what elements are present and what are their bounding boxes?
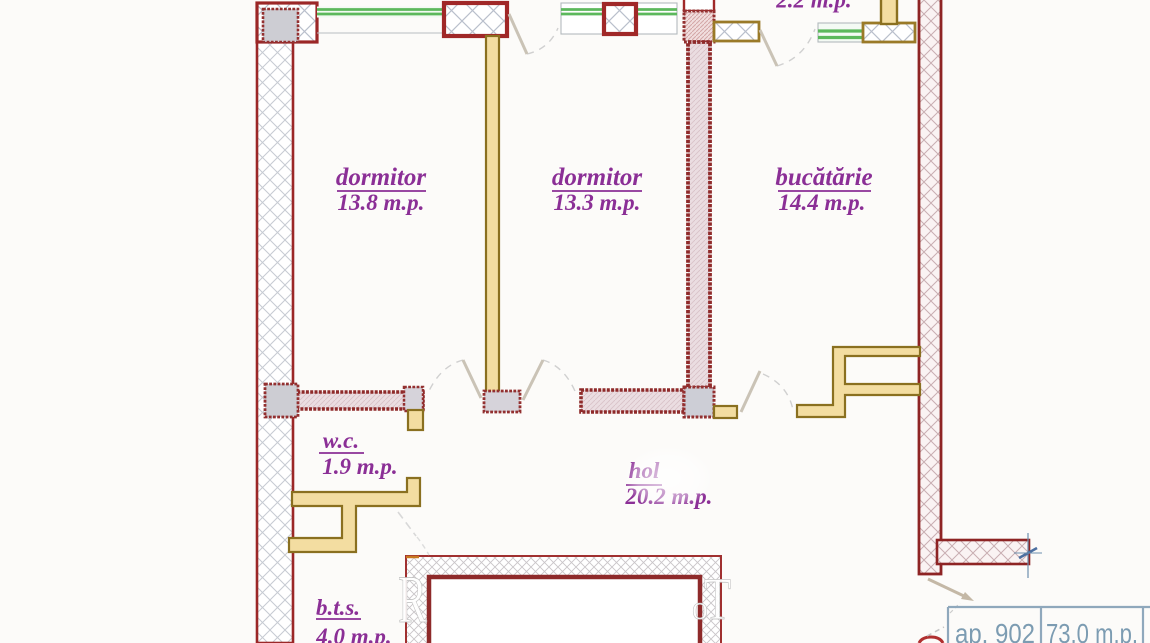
svg-text:13.3 m.p.: 13.3 m.p. xyxy=(554,190,641,215)
svg-text:T: T xyxy=(704,566,731,632)
svg-text:14.4 m.p.: 14.4 m.p. xyxy=(779,190,866,215)
svg-text:73,0 m.p.: 73,0 m.p. xyxy=(1046,618,1138,643)
svg-text:2.2 m.p.: 2.2 m.p. xyxy=(775,0,851,13)
svg-text:dormitor: dormitor xyxy=(552,164,643,191)
svg-text:ap. 902: ap. 902 xyxy=(955,618,1035,643)
svg-text:4.0 m.p.: 4.0 m.p. xyxy=(315,624,391,643)
svg-text:w.c.: w.c. xyxy=(323,428,359,453)
svg-text:dormitor: dormitor xyxy=(336,164,427,191)
svg-text:bucătărie: bucătărie xyxy=(775,164,872,191)
svg-text:1.9 m.p.: 1.9 m.p. xyxy=(322,454,397,479)
svg-text:b.t.s.: b.t.s. xyxy=(316,595,360,620)
svg-text:R: R xyxy=(398,561,427,637)
svg-text:13.8 m.p.: 13.8 m.p. xyxy=(338,190,425,215)
